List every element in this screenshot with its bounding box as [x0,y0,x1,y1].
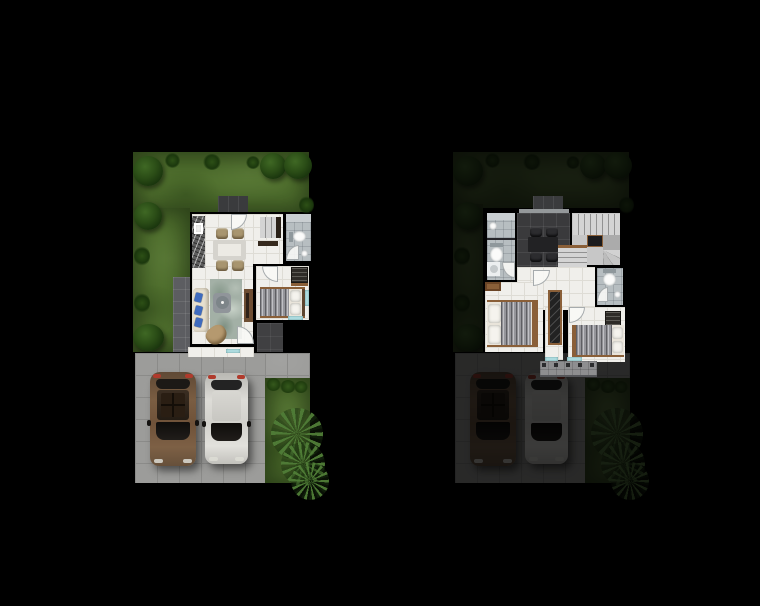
tv-icon [246,293,249,318]
bathroom1-divider [487,238,515,240]
bed-pillow [488,325,501,344]
floor-plan-second-floor [453,150,645,498]
coffee-table-center [221,301,224,304]
staircase [260,217,276,238]
master-bed [487,300,538,347]
family-chair [530,227,542,237]
washbasin-icon [301,250,308,257]
balcony-post-icon [590,363,594,367]
washbasin-icon [489,222,497,230]
footboard [532,302,538,345]
dining-chair [216,260,228,271]
bedroom2-bed [572,325,624,357]
toilet-icon [293,231,306,242]
front-terrace [188,347,254,357]
balcony-post-icon [578,363,582,367]
stair-side-wall [276,217,281,238]
washbasin-icon [614,291,621,298]
balcony-post-icon [566,363,570,367]
balcony-rail [540,375,597,377]
bed-blanket [260,289,289,316]
washing-machine [487,262,500,276]
bed-pillow [612,341,623,353]
wardrobe [605,311,621,326]
family-table [528,237,558,252]
bed-blanket [576,325,612,355]
stairs-winder-steps [603,235,620,265]
washing-machine-drum [490,265,498,273]
bathroom1-vanity [487,213,515,220]
dresser [485,282,501,291]
bathroom-vanity [286,214,311,222]
family-chair [546,252,558,262]
closet-unit [548,290,562,345]
bedroom-window [288,316,303,320]
first-floor-house [133,150,325,498]
dining-chair [216,228,228,239]
wardrobe-trim [291,283,308,286]
stairs-landing [587,235,603,247]
stairs-upper-flight [573,214,620,235]
second-floor-house [453,150,645,498]
family-chair [546,227,558,237]
bed-pillow [612,327,623,339]
floor-plan-first-floor [133,150,325,498]
kitchen-sink [194,223,203,234]
stairs-lower-flight [558,248,587,267]
rear-patio [257,323,283,352]
entry-porch [218,196,248,212]
bed-pillow [290,290,301,302]
dining-chair [232,260,244,271]
toilet-icon [603,273,616,286]
bed-pillow [488,304,501,323]
family-chair [530,252,542,262]
bed [260,287,305,318]
stair-base-wall [258,241,278,246]
bed-pillow [290,303,301,315]
wardrobe [291,267,308,283]
bedroom-window [305,290,309,306]
canvas: { "scene": { "type": "two-storey-house-f… [0,0,760,606]
dining-table-runner [218,244,241,256]
toilet-icon [490,247,503,262]
terrace-window [226,349,240,353]
balcony-post-icon [542,363,546,367]
balcony-post-icon [554,363,558,367]
bed-blanket [501,302,531,345]
